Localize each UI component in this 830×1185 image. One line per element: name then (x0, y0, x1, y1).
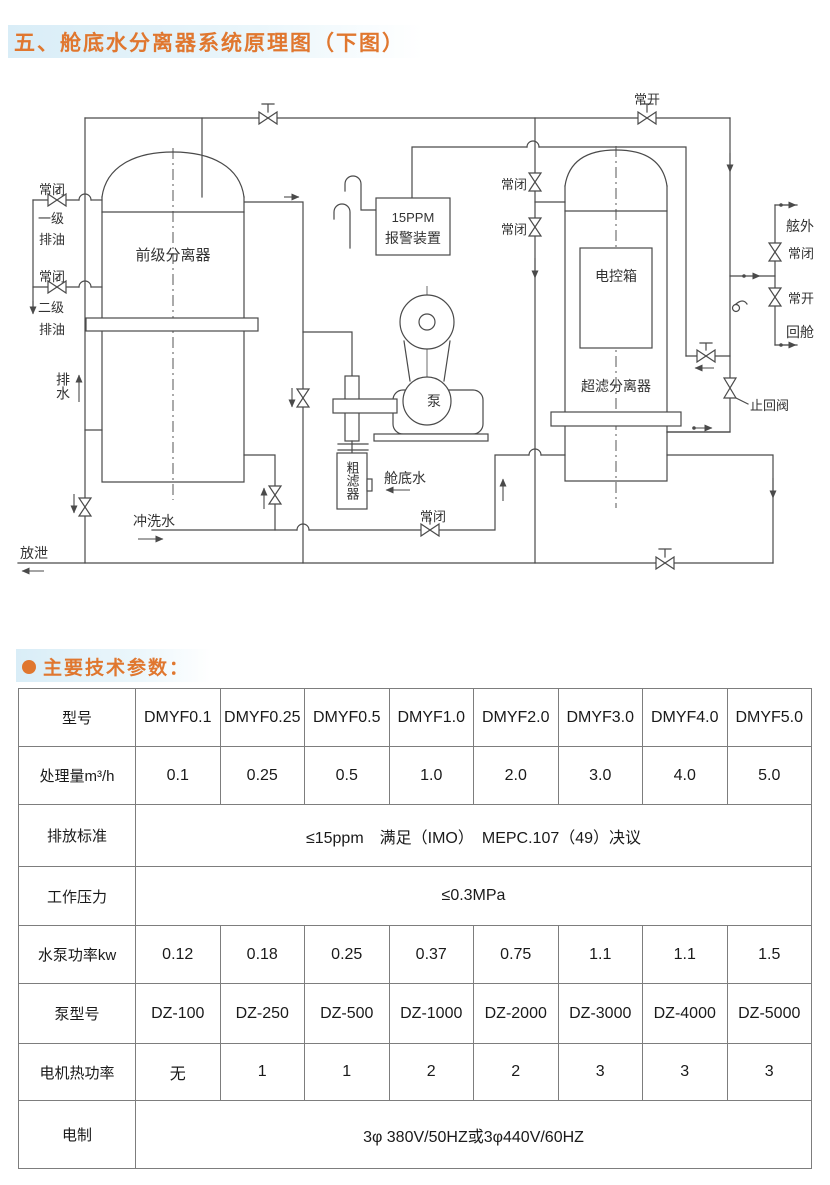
row-label: 工作压力 (19, 867, 136, 926)
globe-valve-top-left-icon (259, 104, 277, 124)
table-row: 工作压力 ≤0.3MPa (19, 867, 812, 926)
table-row: 电制 3φ 380V/50HZ或3φ440V/60HZ (19, 1101, 812, 1169)
coarse-filter-label: 粗滤器 (345, 461, 360, 501)
section-header: 主要技术参数： (22, 653, 190, 680)
primary-separator-label: 前级分离器 (135, 247, 210, 264)
control-box (580, 248, 652, 348)
ppm-alarm-line1: 15PPM (392, 210, 435, 225)
control-box-label: 电控箱 (595, 268, 637, 284)
system-diagram: 前级分离器 电控箱 超滤分离器 泵 (0, 80, 830, 620)
normally-closed-label: 常闭 (501, 177, 527, 192)
normally-open-label: 常开 (788, 291, 814, 306)
normally-closed-label: 常闭 (788, 246, 814, 261)
normally-closed-label: 常闭 (39, 269, 65, 284)
pulley-hub (419, 314, 435, 330)
row-label: 泵型号 (19, 984, 136, 1044)
row-label: 电制 (19, 1101, 136, 1169)
normally-closed-valve1-icon (529, 173, 541, 191)
return-valve-icon (769, 288, 781, 306)
check-valve-icon (724, 378, 748, 404)
cell: 2 (474, 1044, 559, 1101)
globe-valve-normally-open-icon (638, 104, 656, 124)
cell: DZ-3000 (558, 984, 643, 1044)
cell: 0.25 (305, 926, 390, 984)
cell: 2.0 (474, 747, 559, 805)
cell: DMYF0.25 (220, 689, 305, 747)
row-label: 水泵功率kw (19, 926, 136, 984)
page-title: 五、舱底水分离器系统原理图（下图） (14, 27, 405, 57)
oil-discharge-label: 排油 (39, 232, 65, 247)
cell: 0.18 (220, 926, 305, 984)
cell: DMYF4.0 (643, 689, 728, 747)
stage1-label: 一级 (38, 211, 64, 226)
cell: DMYF0.5 (305, 689, 390, 747)
cell: DZ-1000 (389, 984, 474, 1044)
cell: 3.0 (558, 747, 643, 805)
cell: 0.5 (305, 747, 390, 805)
cell: 0.12 (136, 926, 221, 984)
return-to-tank-label: 回舱 (786, 324, 814, 340)
cell: 0.75 (474, 926, 559, 984)
row-label: 型号 (19, 689, 136, 747)
cell: DZ-250 (220, 984, 305, 1044)
tank-bottom-valve-icon (269, 486, 281, 504)
cell: 2 (389, 1044, 474, 1101)
cell: 1.5 (727, 926, 812, 984)
span-cell: ≤0.3MPa (136, 867, 812, 926)
cell: DZ-2000 (474, 984, 559, 1044)
primary-separator-tank: 前级分离器 (86, 148, 258, 500)
overboard-label: 舷外 (786, 218, 814, 234)
cell: DMYF0.1 (136, 689, 221, 747)
cell: 3 (558, 1044, 643, 1101)
drain-valve-left-icon (79, 498, 91, 516)
cell: 1.1 (558, 926, 643, 984)
oil-discharge-label: 排油 (39, 322, 65, 337)
ppm-alarm-line2: 报警装置 (385, 230, 441, 246)
bullet-icon (22, 660, 36, 674)
normally-closed-valve2-icon (529, 218, 541, 236)
cell: 0.25 (220, 747, 305, 805)
table-row: 电机热功率 无 1 1 2 2 3 3 3 (19, 1044, 812, 1101)
cell: DMYF3.0 (558, 689, 643, 747)
outlet-valve-icon (297, 389, 309, 407)
cell: DZ-100 (136, 984, 221, 1044)
cell: 1.1 (643, 926, 728, 984)
cell: 1.0 (389, 747, 474, 805)
specs-table: 型号 DMYF0.1 DMYF0.25 DMYF0.5 DMYF1.0 DMYF… (18, 688, 812, 1169)
section-title: 主要技术参数： (43, 653, 190, 680)
sample-probe-icon (334, 204, 350, 248)
cell: 4.0 (643, 747, 728, 805)
document-page: 五、舱底水分离器系统原理图（下图） (0, 0, 830, 1185)
cell: DMYF2.0 (474, 689, 559, 747)
overboard-valve-icon (769, 243, 781, 261)
pump-label: 泵 (427, 393, 441, 409)
cell: 3 (727, 1044, 812, 1101)
pump-assembly: 泵 (374, 286, 488, 441)
cell: DZ-4000 (643, 984, 728, 1044)
table-row: 水泵功率kw 0.12 0.18 0.25 0.37 0.75 1.1 1.1 … (19, 926, 812, 984)
row-label: 电机热功率 (19, 1044, 136, 1101)
tank-flange (86, 318, 258, 331)
cell: DMYF1.0 (389, 689, 474, 747)
pump-base (374, 434, 488, 441)
normally-closed-label: 常闭 (39, 182, 65, 197)
table-row: 处理量m³/h 0.1 0.25 0.5 1.0 2.0 3.0 4.0 5.0 (19, 747, 812, 805)
blow-off-label: 放泄 (20, 545, 48, 561)
bottom-drain-valve-icon (656, 549, 674, 569)
sample-line-valve-icon (697, 343, 715, 362)
cell: 5.0 (727, 747, 812, 805)
span-cell: 3φ 380V/50HZ或3φ440V/60HZ (136, 1101, 812, 1169)
uf-separator-tank: 电控箱 超滤分离器 (551, 146, 681, 508)
cell: 1 (220, 1044, 305, 1101)
flush-water-label: 冲洗水 (133, 513, 175, 529)
cell: DZ-500 (305, 984, 390, 1044)
cell: DZ-5000 (727, 984, 812, 1044)
ppm-alarm-unit: 15PPM 报警装置 (334, 176, 450, 255)
cell: 0.37 (389, 926, 474, 984)
tank-flange (551, 412, 681, 426)
row-label: 排放标准 (19, 805, 136, 867)
sample-faucet-icon (733, 301, 748, 312)
normally-open-label: 常开 (634, 92, 660, 107)
normally-closed-label: 常闭 (501, 222, 527, 237)
check-valve-label: 止回阀 (750, 398, 789, 413)
drain-water-label: 排水 (55, 372, 71, 400)
span-cell: ≤15ppm 满足（IMO） MEPC.107（49）决议 (136, 805, 812, 867)
cell: 1 (305, 1044, 390, 1101)
coarse-filter-assembly: 粗滤器 (333, 376, 397, 509)
uf-separator-label: 超滤分离器 (581, 378, 651, 394)
cell: DMYF5.0 (727, 689, 812, 747)
cell: 0.1 (136, 747, 221, 805)
table-row: 排放标准 ≤15ppm 满足（IMO） MEPC.107（49）决议 (19, 805, 812, 867)
bilge-water-label: 舱底水 (384, 470, 426, 486)
filter-crossbar (333, 399, 397, 413)
normally-closed-label: 常闭 (420, 509, 446, 524)
sample-probe-icon (345, 176, 376, 210)
filter-inlet-stub (367, 479, 372, 491)
table-row: 泵型号 DZ-100 DZ-250 DZ-500 DZ-1000 DZ-2000… (19, 984, 812, 1044)
table-row: 型号 DMYF0.1 DMYF0.25 DMYF0.5 DMYF1.0 DMYF… (19, 689, 812, 747)
ppm-alarm-box (376, 198, 450, 255)
cell: 3 (643, 1044, 728, 1101)
row-label: 处理量m³/h (19, 747, 136, 805)
cell: 无 (136, 1044, 221, 1101)
stage2-label: 二级 (38, 300, 64, 315)
